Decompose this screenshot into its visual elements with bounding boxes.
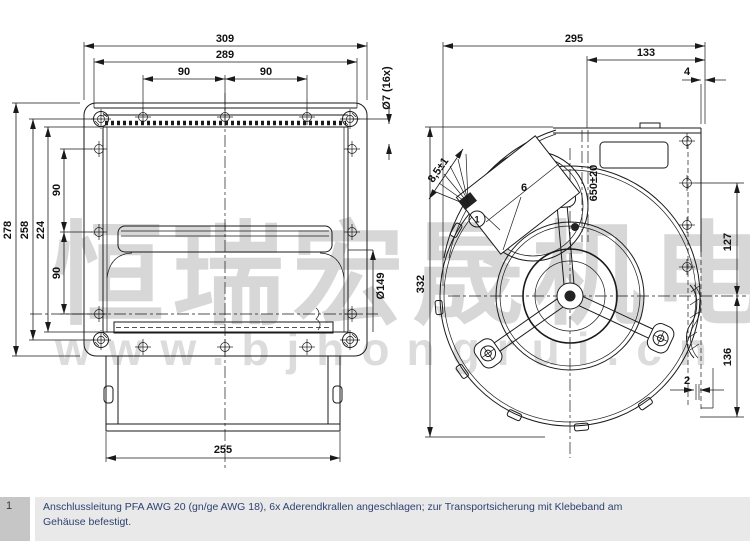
front-flange-outline bbox=[84, 103, 367, 356]
dim-inner-width: 289 bbox=[216, 49, 234, 61]
dim-motor-depth: 133 bbox=[637, 47, 655, 59]
dim-depth: 295 bbox=[565, 33, 583, 45]
terminal-plate bbox=[456, 136, 579, 254]
dim-clearance: 2 bbox=[684, 375, 690, 387]
dim-flange-gap: 4 bbox=[684, 66, 691, 78]
plate-bolt bbox=[571, 223, 579, 231]
side-dimension-lines bbox=[430, 46, 737, 437]
front-opening-inner-walls bbox=[107, 127, 344, 332]
bolt-hole bbox=[91, 224, 107, 240]
dim-opening-height: 224 bbox=[35, 220, 47, 239]
front-lower-slot bbox=[114, 322, 333, 333]
bolt-hole bbox=[679, 133, 695, 149]
note-text: Anschlussleitung PFA AWG 20 (gn/ge AWG 1… bbox=[35, 497, 750, 541]
bolt-hole bbox=[679, 217, 695, 233]
dim-cable-length: 650±20 bbox=[588, 165, 600, 202]
bolt-hole bbox=[91, 306, 107, 322]
dim-inlet-diameter: Ø149 bbox=[375, 273, 387, 300]
bolt-hole bbox=[299, 339, 315, 355]
dim-mounting-holes: Ø7 (16x) bbox=[381, 66, 393, 110]
dim-height: 332 bbox=[415, 275, 427, 293]
note-text-line2: Gehäuse befestigt. bbox=[43, 515, 742, 530]
dim-upper-offset: 127 bbox=[722, 233, 734, 251]
callout-number: 1 bbox=[474, 215, 479, 225]
housing-clip bbox=[507, 409, 523, 421]
bolt-hole bbox=[91, 141, 107, 157]
nameplate bbox=[600, 142, 668, 168]
housing-clip bbox=[638, 397, 653, 411]
motor-spoke bbox=[575, 288, 677, 355]
dim-inner-height: 258 bbox=[19, 221, 31, 239]
dim-top-pitch-right: 90 bbox=[260, 66, 272, 78]
bolt-hole bbox=[135, 339, 151, 355]
bolt-hole bbox=[299, 109, 315, 125]
bolt-hole bbox=[344, 224, 360, 240]
parts-note-row: 1 Anschlussleitung PFA AWG 20 (gn/ge AWG… bbox=[0, 497, 750, 544]
dim-top-pitch-left: 90 bbox=[178, 66, 190, 78]
dim-outer-width: 309 bbox=[216, 33, 234, 45]
front-body-lines bbox=[94, 108, 357, 115]
front-mounting-bracket bbox=[104, 356, 342, 431]
label-wire-count: 6 bbox=[521, 182, 527, 194]
bolt-hole bbox=[344, 141, 360, 157]
technical-drawing: 309 289 90 90 278 258 224 90 90 255 Ø7 (… bbox=[0, 0, 750, 490]
note-index-cell: 1 bbox=[0, 497, 30, 541]
housing-clip bbox=[455, 364, 469, 379]
front-mounting-holes bbox=[91, 109, 360, 355]
housing-clip bbox=[574, 423, 589, 431]
motor-shaft bbox=[565, 291, 576, 302]
dim-strip-length: 8,5±1 bbox=[426, 156, 452, 185]
bolt-hole bbox=[679, 259, 695, 275]
housing-clip bbox=[435, 300, 443, 315]
corner-screw bbox=[340, 330, 360, 350]
note-text-line1: Anschlussleitung PFA AWG 20 (gn/ge AWG 1… bbox=[43, 500, 742, 515]
bolt-hole bbox=[217, 339, 233, 355]
dim-base-width: 255 bbox=[214, 444, 232, 456]
motor-spoke bbox=[471, 291, 568, 371]
bolt-hole bbox=[679, 175, 695, 191]
front-view: 309 289 90 90 278 258 224 90 90 255 Ø7 (… bbox=[2, 33, 393, 470]
front-opening bbox=[103, 127, 348, 332]
dim-side-pitch-lower: 90 bbox=[51, 267, 63, 279]
side-view: 1 295 133 4 332 650±20 bbox=[415, 33, 746, 458]
dim-lower-offset: 136 bbox=[722, 348, 734, 366]
bolt-hole bbox=[344, 306, 360, 322]
front-impeller-bar bbox=[107, 226, 344, 330]
dim-side-pitch-upper: 90 bbox=[51, 184, 63, 196]
housing-clip bbox=[450, 222, 463, 238]
drawing-canvas: 恒瑞宏晟机电 www.bjhongrui.cn bbox=[0, 0, 750, 490]
dim-outer-height: 278 bbox=[2, 221, 14, 239]
side-extension-lines bbox=[425, 42, 744, 437]
front-break-line bbox=[316, 308, 320, 330]
